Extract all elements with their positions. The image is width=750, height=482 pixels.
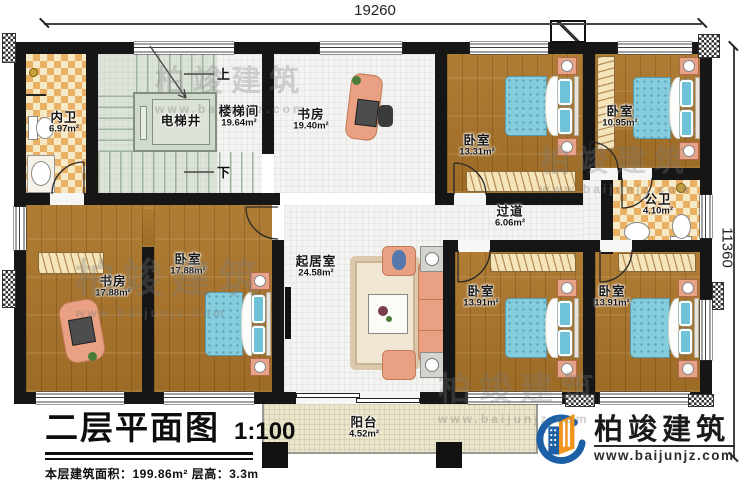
brand-logo-icon bbox=[530, 409, 588, 469]
armchair-bottom bbox=[382, 350, 416, 380]
window-bedroom1 bbox=[470, 42, 548, 54]
floor-plan: 内卫6.97m² 电梯井 楼梯间19.64m² 书房19.40m² 卧室13.3… bbox=[0, 0, 750, 482]
bed2-sheet bbox=[669, 77, 680, 139]
dimension-top: 19260 bbox=[340, 2, 410, 19]
wall-study2-bedroom3 bbox=[142, 247, 154, 392]
window-stairwell bbox=[134, 42, 234, 54]
sofa-main bbox=[418, 262, 444, 362]
tv-icon bbox=[285, 287, 291, 339]
bed4-sheet bbox=[545, 298, 558, 358]
label-bedroom3: 卧室17.88m² bbox=[170, 252, 205, 277]
faucet-inner-icon bbox=[29, 68, 38, 77]
hatch-left-lower bbox=[2, 270, 16, 308]
side-table-top bbox=[420, 246, 444, 272]
person-figure bbox=[392, 250, 406, 270]
hatch-top-left bbox=[2, 33, 16, 63]
bedroom5-wardrobe bbox=[618, 253, 696, 272]
bed2-mattress bbox=[633, 77, 671, 139]
window-study-bottom-left bbox=[14, 207, 26, 250]
hatch-bottom-right bbox=[688, 394, 714, 407]
window-bath-public bbox=[700, 195, 712, 238]
door-gap-bedroom5 bbox=[600, 240, 632, 252]
label-corridor: 过道6.06m² bbox=[495, 204, 525, 229]
door-gap-bath-inner bbox=[50, 193, 84, 205]
window-bedroom4-bottom bbox=[468, 392, 562, 404]
door-gap-bedroom2 bbox=[590, 168, 618, 180]
balcony-floor bbox=[262, 402, 538, 454]
bed5-pillow-bottom bbox=[679, 329, 692, 354]
coffee-table bbox=[368, 294, 408, 334]
bed1-sheet bbox=[545, 76, 558, 136]
wall-bedroom1-bedroom2 bbox=[583, 54, 595, 180]
monitor-top-icon bbox=[354, 99, 379, 127]
stair-flight-lower bbox=[98, 152, 262, 193]
dimension-top-line bbox=[44, 23, 702, 25]
bed4-nightstand-bottom bbox=[557, 360, 577, 378]
label-bedroom4: 卧室13.91m² bbox=[463, 284, 498, 309]
window-study-top bbox=[320, 42, 402, 54]
label-elevator: 电梯井 bbox=[161, 114, 202, 128]
elevator-counterweight bbox=[140, 106, 147, 140]
door-gap-bath-public bbox=[622, 168, 652, 180]
title-underline bbox=[45, 452, 253, 460]
sliding-door-panel-right bbox=[356, 398, 420, 403]
bed1-pillow-top bbox=[558, 79, 572, 105]
bed4-nightstand-top bbox=[557, 279, 577, 297]
window-bedroom5-bottom bbox=[600, 392, 690, 404]
label-study-bottom: 书房17.88m² bbox=[95, 274, 130, 299]
plant-top-icon bbox=[352, 76, 361, 85]
bed3-headboard bbox=[266, 292, 271, 356]
bed1-pillow-bottom bbox=[558, 108, 572, 134]
brand-block: 柏竣建筑 www.baijunjz.com bbox=[530, 409, 735, 469]
bed2-nightstand-top bbox=[679, 57, 699, 75]
label-study-top: 书房19.40m² bbox=[293, 107, 328, 132]
page-title: 二层平面图 bbox=[45, 401, 220, 449]
wall-bedroom4-bedroom5 bbox=[583, 240, 595, 392]
bed4-headboard bbox=[574, 298, 579, 358]
brand-url: www.baijunjz.com bbox=[594, 445, 735, 463]
balcony-column-right bbox=[436, 442, 462, 468]
bed2-pillow-bottom bbox=[680, 110, 693, 137]
window-bedroom2 bbox=[618, 42, 692, 54]
label-living: 起居室24.58m² bbox=[296, 254, 337, 279]
coffee-table-flower bbox=[378, 306, 388, 316]
bedroom4-wardrobe bbox=[490, 253, 576, 272]
title-block: 二层平面图 1:100 本层建筑面积：199.86m² 层高：3.3m 注：阳台… bbox=[45, 401, 295, 482]
label-bedroom5: 卧室13.91m² bbox=[594, 284, 629, 309]
corridor-floor bbox=[284, 205, 601, 240]
bed5-nightstand-top bbox=[678, 279, 698, 297]
wall-living-bedroom3 bbox=[272, 240, 284, 392]
bed5-nightstand-bottom bbox=[678, 360, 698, 378]
bed1-headboard bbox=[574, 76, 579, 136]
bed1-mattress bbox=[505, 76, 547, 136]
bed4-pillow-top bbox=[558, 301, 572, 327]
office-chair-top bbox=[378, 105, 393, 127]
bed4-mattress bbox=[505, 298, 547, 358]
label-bath-public: 公卫4.10m² bbox=[643, 192, 673, 217]
monitor-bottom-icon bbox=[68, 316, 96, 346]
sink-public-basin bbox=[624, 222, 650, 242]
toilet-public-bowl bbox=[672, 214, 691, 239]
bed5-sheet bbox=[668, 298, 679, 358]
bed2-pillow-top bbox=[680, 80, 693, 107]
bed5-headboard bbox=[694, 298, 699, 358]
wall-stairs-study bbox=[262, 54, 274, 154]
shower-public-icon bbox=[676, 183, 686, 193]
study2-cabinet bbox=[38, 252, 104, 274]
door-gap-bedroom1 bbox=[454, 193, 486, 205]
wall-living-bedroom4 bbox=[443, 240, 455, 392]
bed1-nightstand-top bbox=[557, 57, 577, 75]
bath-hall-floor bbox=[583, 180, 601, 240]
plant-bottom-icon bbox=[88, 352, 97, 361]
bed3-pillow-top bbox=[252, 295, 265, 323]
bed4-pillow-bottom bbox=[558, 330, 572, 356]
wall-bath-stairs bbox=[86, 54, 98, 205]
bed3-nightstand-top bbox=[250, 272, 270, 290]
plan-scale: 1:100 bbox=[234, 418, 295, 446]
study-doorway-floor bbox=[142, 205, 154, 247]
stair-flight-left bbox=[98, 92, 136, 152]
brand-name: 柏竣建筑 bbox=[594, 415, 735, 445]
bed1-nightstand-bottom bbox=[557, 138, 577, 156]
window-bedroom5-right bbox=[700, 300, 712, 360]
dimension-right-line bbox=[733, 46, 735, 458]
bed5-pillow-top bbox=[679, 301, 692, 326]
label-bedroom1: 卧室13.31m² bbox=[459, 133, 494, 158]
bedroom1-wardrobe bbox=[466, 171, 576, 192]
side-table-bottom bbox=[420, 352, 444, 378]
label-bath-inner: 内卫6.97m² bbox=[49, 110, 79, 135]
wall-study-bedroom1 bbox=[435, 54, 447, 205]
shelf-inner-line bbox=[26, 94, 46, 96]
stair-flight-upper bbox=[136, 54, 217, 92]
bed3-pillow-bottom bbox=[252, 326, 265, 354]
sliding-door-panel-left bbox=[296, 393, 360, 398]
hatch-top-right bbox=[698, 34, 720, 58]
bed3-sheet bbox=[241, 292, 252, 356]
bed2-nightstand-bottom bbox=[679, 142, 699, 160]
door-gap-bedroom4 bbox=[458, 240, 490, 252]
stair-down-label: 下 bbox=[217, 162, 230, 181]
bed3-nightstand-bottom bbox=[250, 358, 270, 376]
label-bedroom2: 卧室10.95m² bbox=[602, 104, 637, 129]
sink-inner-basin bbox=[31, 161, 51, 186]
label-stairwell: 楼梯间19.64m² bbox=[219, 104, 260, 129]
hatch-right-lower bbox=[712, 282, 724, 310]
hatch-bottom-mid bbox=[565, 394, 595, 407]
bed3-mattress bbox=[205, 292, 243, 356]
bed5-mattress bbox=[630, 298, 670, 358]
bedroom2-wardrobe bbox=[597, 56, 615, 150]
floor-area-line: 本层建筑面积：199.86m² 层高：3.3m bbox=[45, 465, 295, 482]
stair-up-label: 上 bbox=[217, 64, 230, 83]
label-balcony: 阳台4.52m² bbox=[349, 415, 379, 440]
